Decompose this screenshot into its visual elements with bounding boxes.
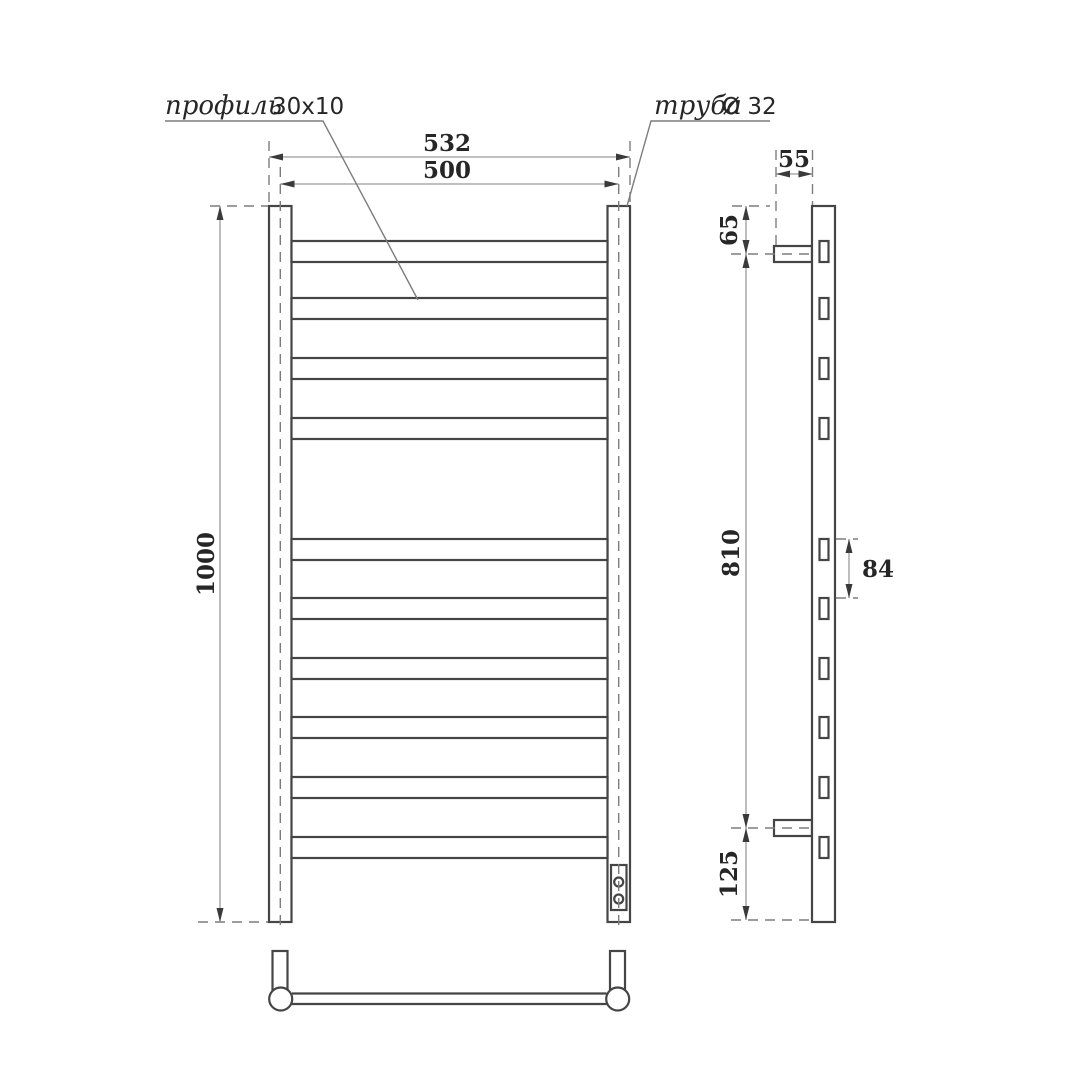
side-rung-section [820, 777, 829, 798]
dim-bracket-span: 810 [718, 254, 746, 828]
dim-outer-width: 532 [269, 130, 630, 157]
side-view: 55 65 810 84 125 [716, 146, 894, 922]
bottom-view-pipe-right [606, 988, 629, 1011]
front-rung [292, 241, 608, 262]
dim-center-width: 500 [281, 157, 619, 184]
front-view: 532 500 1000 профиль 30x10 труба Ø 32 [165, 91, 777, 932]
side-rung-section [820, 837, 829, 858]
side-rung-section [820, 418, 829, 439]
dim-value-65: 65 [716, 214, 743, 246]
dim-value-84: 84 [862, 556, 894, 583]
dim-bottom-offset: 125 [716, 828, 746, 920]
dim-value-500: 500 [423, 157, 471, 184]
dim-depth: 55 [776, 146, 813, 174]
side-rung-section [820, 717, 829, 738]
dim-height: 1000 [193, 206, 220, 922]
side-rung-section [820, 298, 829, 319]
bottom-view-pipe-left [269, 988, 292, 1011]
front-rung [292, 837, 608, 858]
side-rung-section [820, 241, 829, 262]
front-rung [292, 539, 608, 560]
front-rung [292, 658, 608, 679]
front-rung [292, 777, 608, 798]
front-rung [292, 358, 608, 379]
pipe-callout: труба Ø 32 [627, 91, 777, 206]
drawing-canvas: 532 500 1000 профиль 30x10 труба Ø 32 [0, 0, 1080, 1080]
dim-value-532: 532 [423, 130, 471, 157]
dim-value-55: 55 [778, 146, 810, 173]
dim-value-810: 810 [718, 529, 745, 577]
front-rungs [292, 241, 608, 858]
profile-callout-size: 30x10 [272, 94, 344, 120]
front-rung [292, 717, 608, 738]
side-rung-section [820, 539, 829, 560]
front-rung [292, 298, 608, 319]
side-rung-section [820, 658, 829, 679]
side-rung-section [820, 598, 829, 619]
dim-top-offset: 65 [716, 206, 746, 254]
bottom-view-bracket-left [273, 951, 288, 990]
front-rung [292, 598, 608, 619]
side-extension-lines [731, 150, 858, 920]
bottom-view [269, 951, 629, 1011]
dim-value-125: 125 [716, 850, 743, 898]
front-rung [292, 418, 608, 439]
side-rung-section [820, 358, 829, 379]
bottom-view-bracket-right [610, 951, 625, 990]
dim-value-1000: 1000 [193, 532, 220, 596]
towel-rail-technical-drawing: 532 500 1000 профиль 30x10 труба Ø 32 [0, 0, 1080, 1080]
dim-rung-pitch: 84 [849, 539, 894, 598]
profile-callout-word: профиль [165, 91, 282, 121]
pipe-callout-size: Ø 32 [722, 94, 777, 120]
pipe-leader-line [627, 121, 770, 206]
